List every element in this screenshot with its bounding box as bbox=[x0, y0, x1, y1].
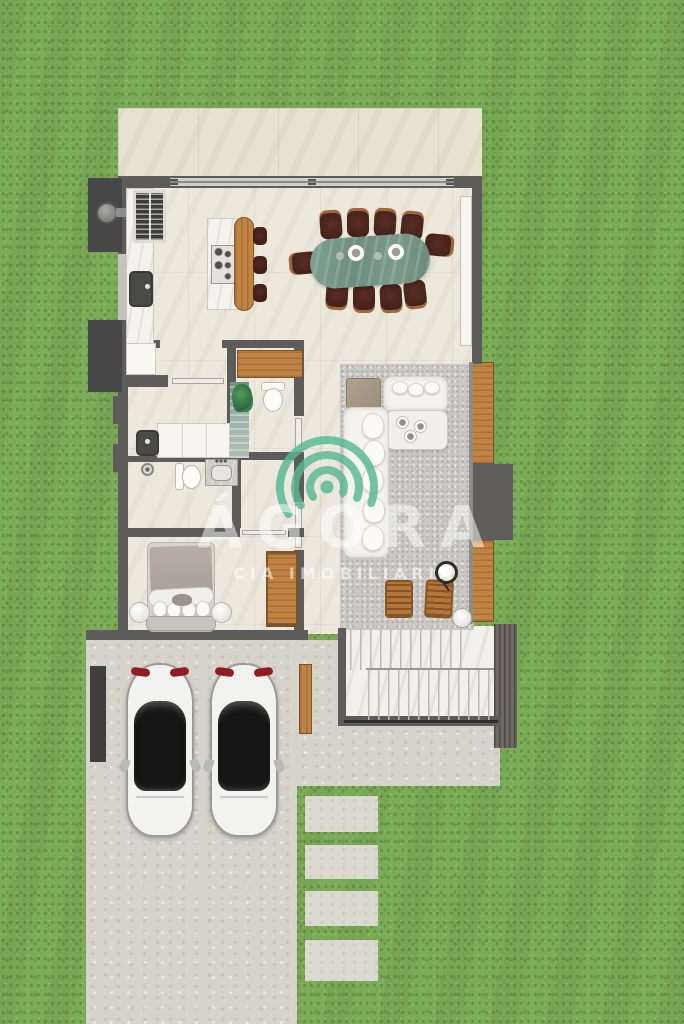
sofa-cushion bbox=[363, 497, 385, 523]
car-taillight bbox=[170, 667, 190, 678]
wall-bath-top-b bbox=[222, 340, 304, 348]
door-leaf-hall bbox=[295, 504, 302, 548]
wall-pilaster bbox=[113, 396, 127, 424]
gate-pillar bbox=[90, 666, 106, 762]
bowl bbox=[336, 252, 344, 260]
car-taillight bbox=[254, 667, 274, 678]
wall-stairs-left bbox=[338, 628, 346, 724]
bedside-stool bbox=[211, 602, 232, 623]
wall-hall-right-b bbox=[294, 454, 304, 502]
wall-pilaster bbox=[113, 444, 127, 472]
dining-chair bbox=[379, 283, 402, 310]
kitchen-sink bbox=[129, 271, 153, 307]
plate bbox=[348, 245, 364, 261]
refrigerator bbox=[133, 190, 166, 243]
cup bbox=[414, 420, 427, 433]
wall-laundry bbox=[126, 375, 168, 387]
bed-cushion-gray bbox=[172, 594, 192, 606]
bar-stool bbox=[253, 284, 267, 302]
door-leaf-powder bbox=[295, 418, 302, 452]
bowl bbox=[374, 252, 382, 260]
sofa-cushion bbox=[408, 383, 424, 396]
floor-lamp bbox=[452, 608, 472, 628]
bed-pillow bbox=[153, 601, 167, 617]
stair-flight-lower bbox=[368, 670, 494, 720]
bath-toilet-bowl bbox=[182, 465, 201, 489]
plate bbox=[388, 244, 404, 260]
ottoman bbox=[346, 378, 381, 408]
car-hood-line bbox=[220, 796, 268, 798]
window-right bbox=[460, 196, 472, 346]
sofa-cushion bbox=[362, 525, 384, 551]
powder-cabinet bbox=[237, 350, 303, 378]
stair-edge-line bbox=[344, 720, 498, 723]
utility-box-bottom bbox=[88, 320, 122, 392]
bedside-stool bbox=[129, 602, 150, 623]
bed-headboard bbox=[146, 616, 216, 631]
vanity-basin bbox=[211, 465, 232, 481]
car-hood-line bbox=[136, 796, 184, 798]
car-glass-roof bbox=[134, 701, 186, 791]
wood-side-gate bbox=[299, 664, 312, 734]
cooktop bbox=[211, 245, 235, 284]
stair-handrail bbox=[366, 668, 494, 670]
gas-cylinder bbox=[96, 202, 118, 224]
car-glass-roof bbox=[218, 701, 270, 791]
door-leaf-bedroom bbox=[242, 530, 286, 535]
paver-stone bbox=[305, 796, 378, 832]
sofa-cushion bbox=[362, 467, 384, 493]
shower-head bbox=[141, 463, 154, 476]
sofa-cushion bbox=[362, 413, 384, 439]
sofa-cushion bbox=[392, 381, 408, 394]
glass-wall-living bbox=[469, 362, 473, 624]
paver-stone bbox=[305, 845, 378, 879]
sliding-door-track bbox=[170, 178, 454, 186]
kitchen-faucet bbox=[145, 284, 150, 289]
laundry-faucet bbox=[145, 439, 150, 444]
door-leaf-kitchen bbox=[172, 378, 224, 384]
deck-strip-lower bbox=[472, 540, 494, 622]
terrace bbox=[118, 108, 482, 182]
dining-chair bbox=[347, 211, 369, 237]
bed-pillow bbox=[196, 601, 210, 617]
plant bbox=[232, 384, 252, 410]
stair-flight-upper bbox=[350, 628, 462, 670]
side-table bbox=[435, 561, 458, 584]
wall-bedroom-top-a bbox=[126, 528, 240, 537]
hall-counter bbox=[126, 343, 156, 375]
wall-bedroom-top-b bbox=[288, 528, 304, 537]
car bbox=[126, 663, 194, 837]
outdoor-unit-block bbox=[472, 464, 513, 540]
paver-stone bbox=[305, 940, 378, 981]
dining-chair bbox=[353, 284, 375, 310]
laundry-counter bbox=[157, 423, 230, 458]
breakfast-bar bbox=[234, 217, 254, 311]
dining-chair bbox=[319, 212, 343, 239]
dark-slat-deck bbox=[494, 624, 517, 748]
armchair bbox=[424, 579, 454, 618]
vanity-faucet bbox=[215, 459, 227, 463]
powder-toilet-bowl bbox=[263, 388, 283, 412]
dining-table bbox=[308, 232, 431, 290]
cup bbox=[404, 430, 417, 443]
car bbox=[210, 663, 278, 837]
floor-plan-canvas: ÁGORA CIA IMOBILIÁRIA bbox=[0, 0, 684, 1024]
sofa-cushion bbox=[424, 381, 440, 394]
sofa-cushion bbox=[363, 440, 385, 466]
wardrobe bbox=[266, 551, 298, 627]
window-left bbox=[118, 254, 126, 320]
armchair bbox=[385, 580, 413, 618]
cup bbox=[396, 416, 409, 429]
paver-stone bbox=[305, 891, 378, 926]
wall-right bbox=[472, 182, 482, 364]
rear-walkway bbox=[347, 726, 500, 786]
bar-stool bbox=[253, 227, 267, 245]
bar-stool bbox=[253, 256, 267, 274]
deck-strip-upper bbox=[472, 362, 494, 464]
